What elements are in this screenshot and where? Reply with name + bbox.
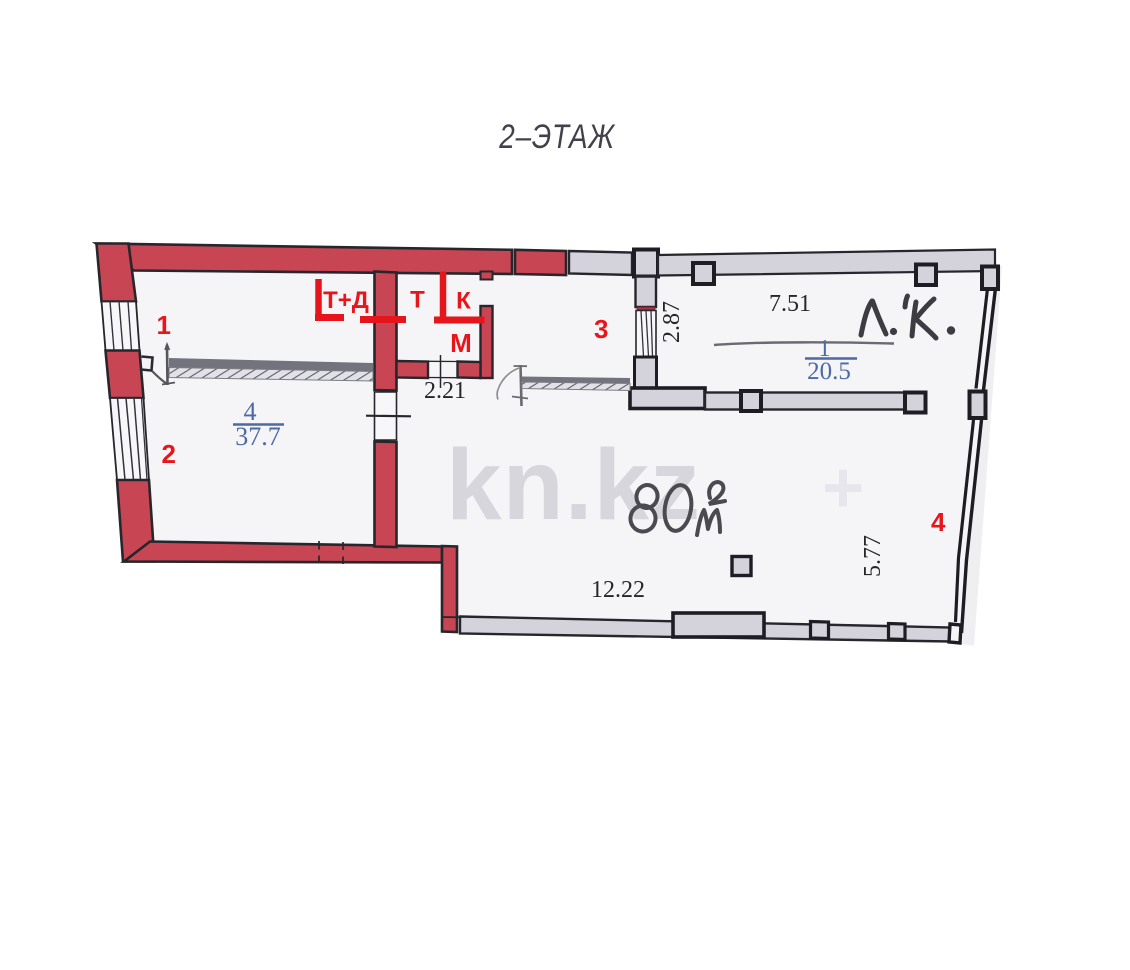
svg-text:2.87: 2.87 bbox=[659, 301, 685, 343]
svg-text:Т: Т bbox=[410, 287, 425, 314]
svg-text:kn.kz: kn.kz bbox=[446, 429, 701, 541]
svg-text:М: М bbox=[450, 328, 472, 358]
svg-text:1: 1 bbox=[157, 310, 171, 340]
svg-text:2.21: 2.21 bbox=[424, 378, 466, 404]
svg-text:12.22: 12.22 bbox=[591, 577, 645, 603]
svg-text:4: 4 bbox=[931, 507, 946, 537]
svg-text:К: К bbox=[456, 288, 471, 315]
svg-text:20.5: 20.5 bbox=[807, 358, 851, 385]
svg-text:+: + bbox=[822, 448, 864, 528]
svg-text:Т+Д: Т+Д bbox=[323, 287, 369, 314]
svg-text:2–ЭТАЖ: 2–ЭТАЖ bbox=[498, 117, 616, 155]
svg-text:37.7: 37.7 bbox=[235, 422, 281, 451]
svg-text:2: 2 bbox=[162, 439, 176, 469]
svg-text:5.77: 5.77 bbox=[860, 535, 886, 577]
svg-text:7.51: 7.51 bbox=[769, 291, 811, 317]
svg-text:3: 3 bbox=[594, 314, 608, 344]
